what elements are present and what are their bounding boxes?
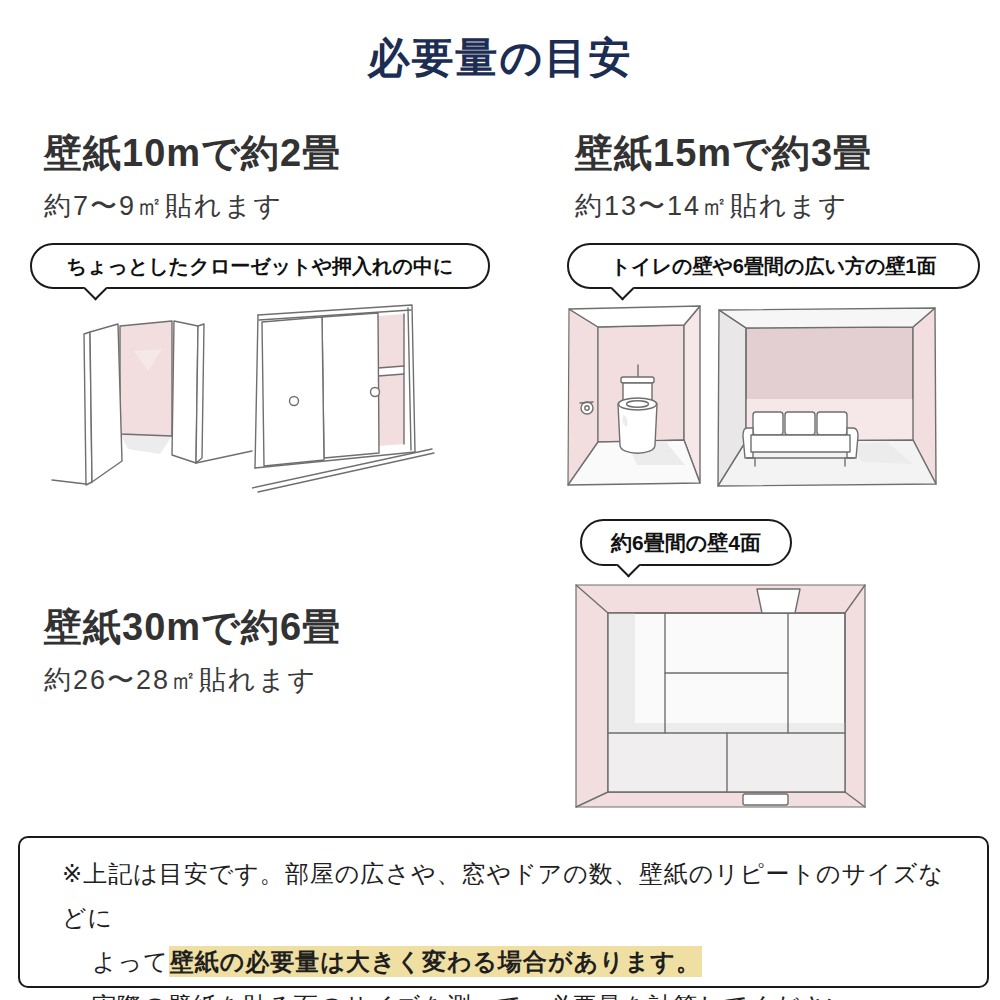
tatami-shaded-band (608, 723, 845, 733)
footer-note-box: ※上記は目安です。部屋の広さや、窓やドアの数、壁紙のリピートのサイズなどに よっ… (18, 836, 989, 988)
sofa-back-cushion (753, 412, 783, 435)
living-ceiling (719, 308, 935, 328)
section-10m-bubble: ちょっとしたクローゼットや押入れの中に (30, 243, 490, 289)
sofa-back-cushion (785, 412, 815, 435)
left-door (90, 324, 122, 482)
interior-lower (378, 374, 404, 446)
section-30m-bubble: 約6畳間の壁4面 (580, 519, 792, 566)
infographic-page: 必要量の目安 壁紙10mで約2畳 約7〜9㎡貼れます ちょっとしたクローゼットや… (0, 0, 1000, 1000)
section-15m-heading: 壁紙15mで約3畳 (575, 128, 872, 179)
footer-note-line2-prefix: よって (92, 948, 169, 975)
section-30m-subtext: 約26〜28㎡貼れます (44, 662, 317, 698)
floor-line-right (196, 451, 252, 463)
section-10m-subtext: 約7〜9㎡貼れます (44, 188, 283, 224)
section-15m-bubble-text: トイレの壁や6畳間の広い方の壁1面 (611, 253, 937, 280)
bubble-tail-icon (610, 276, 634, 300)
right-door-edge (196, 324, 204, 463)
sliding-closet-illustration (252, 300, 437, 496)
section-15m-subtext: 約13〜14㎡貼れます (575, 188, 848, 224)
sliding-panel-right (322, 313, 379, 458)
tatami-shaded-left (608, 613, 635, 733)
bubble-tail-icon (616, 553, 640, 577)
paper-holder-icon (581, 402, 593, 414)
interior-upper (378, 314, 404, 368)
footer-note-line1: ※上記は目安です。部屋の広さや、窓やドアの数、壁紙のリピートのサイズなどに (62, 852, 967, 940)
toilet-seat (619, 398, 657, 410)
six-mat-room-illustration (575, 582, 867, 810)
panel-handle-icon (371, 388, 380, 397)
sliding-panel-left (262, 317, 324, 466)
sofa-back-cushion (817, 412, 847, 435)
footer-note-line3: 実際の壁紙を貼る面のサイズを測って、必要量を計算してください。 (92, 984, 967, 1000)
closet-back-wall (120, 321, 172, 436)
living-room-illustration (717, 304, 939, 490)
floor-line-left (52, 480, 86, 484)
panel-handle-icon (290, 397, 299, 406)
page-title: 必要量の目安 (0, 30, 1000, 86)
toilet-tank-lid (621, 377, 654, 383)
section-30m-bubble-text: 約6畳間の壁4面 (611, 529, 761, 557)
closet-floor-shadow (120, 434, 172, 454)
toilet-room-illustration (565, 303, 705, 489)
room-doorsill (743, 794, 788, 805)
open-closet-illustration (40, 293, 260, 498)
section-30m-heading: 壁紙30mで約6畳 (44, 602, 341, 653)
footer-note-line2: よって壁紙の必要量は大きく変わる場合があります。 (92, 940, 967, 984)
section-15m-bubble: トイレの壁や6畳間の広い方の壁1面 (567, 243, 980, 289)
right-door (172, 321, 198, 463)
section-10m-bubble-text: ちょっとしたクローゼットや押入れの中に (66, 253, 453, 280)
room-door (757, 589, 800, 613)
sofa-seat (751, 435, 850, 452)
footer-note-highlight: 壁紙の必要量は大きく変わる場合があります。 (169, 946, 702, 977)
closet-frame-left (255, 315, 258, 468)
section-10m-heading: 壁紙10mで約2畳 (44, 128, 341, 179)
